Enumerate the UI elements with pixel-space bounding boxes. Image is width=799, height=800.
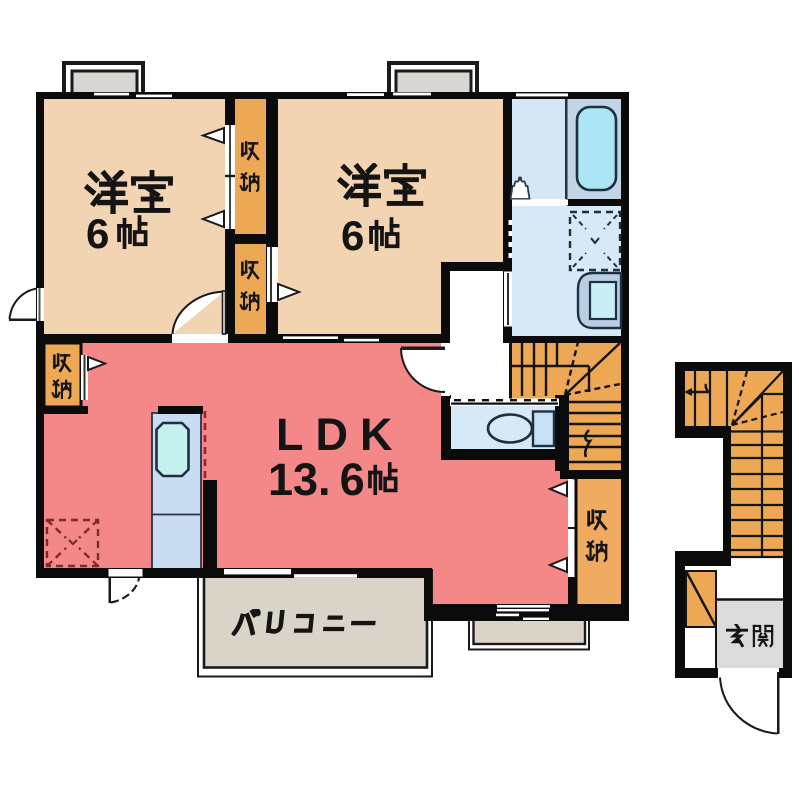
svg-text:6: 6 [341, 212, 364, 259]
svg-text:LDK: LDK [276, 409, 404, 460]
svg-text:13. 6: 13. 6 [268, 454, 365, 505]
svg-text:6: 6 [86, 210, 109, 257]
